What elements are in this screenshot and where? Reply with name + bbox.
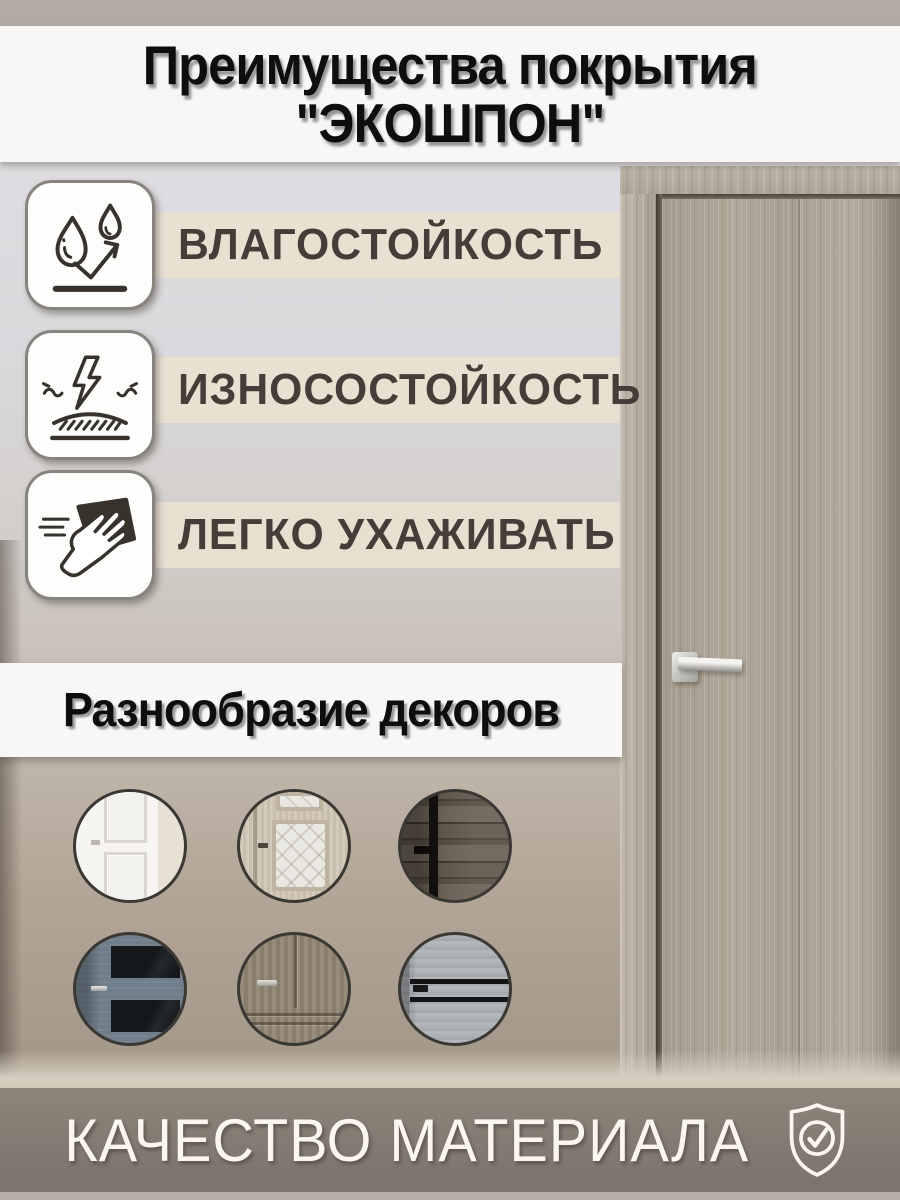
etched-glass-panel: [272, 820, 328, 891]
footer-label: КАЧЕСТВО МАТЕРИАЛА: [65, 1106, 750, 1175]
feature-icon-box-care: [25, 470, 155, 600]
feature-icon-box-moisture: [25, 180, 155, 310]
door-stile: [253, 792, 257, 900]
door-photo: [620, 166, 900, 1090]
title-line-2: "ЭКОШПОН": [295, 94, 604, 152]
water-drops-icon: [33, 188, 147, 302]
etched-glass-small: [276, 792, 324, 811]
black-molding-stripe: [410, 979, 509, 984]
hand-wipe-icon: [33, 478, 147, 592]
door-handle: [413, 985, 428, 992]
feature-icon-box-wear: [25, 330, 155, 460]
panel-groove: [240, 1013, 348, 1016]
door-panel: [104, 789, 147, 843]
feature-strip-moisture: ВЛАГОСТОЙКОСТЬ: [112, 212, 620, 278]
door-handle: [91, 840, 100, 845]
feature-strip-wear: ИЗНОСОСТОЙКОСТЬ: [112, 357, 620, 423]
feature-label-care: ЛЕГКО УХАЖИВАТЬ: [178, 510, 616, 560]
feature-label-wear: ИЗНОСОСТОЙКОСТЬ: [178, 365, 641, 415]
dark-glass-panel: [111, 1000, 180, 1032]
black-edge-strip: [429, 792, 438, 900]
footer-banner: КАЧЕСТВО МАТЕРИАЛА: [0, 1088, 900, 1192]
door-frame-jamb: [620, 194, 656, 1090]
infographic-canvas: Преимущества покрытия "ЭКОШПОН" ВЛАГОСТО…: [0, 0, 900, 1200]
wall-corner-shadow: [0, 540, 22, 1090]
door-leaf: [662, 199, 900, 1090]
decor-section-banner: Разнообразие декоров: [0, 663, 622, 757]
black-molding-stripe: [410, 997, 509, 1002]
decor-light-gray-plank-door: [398, 932, 512, 1046]
door-handle: [414, 846, 429, 854]
decor-blue-gray-dark-glass-door: [73, 932, 187, 1046]
top-edge-strip: [0, 0, 900, 26]
feature-strip-care: ЛЕГКО УХАЖИВАТЬ: [112, 502, 620, 568]
door-panel: [104, 852, 147, 903]
door-frame-head: [620, 166, 900, 196]
floor-blur-band: [0, 1050, 900, 1090]
panel-groove: [294, 935, 297, 1008]
door-handle: [91, 986, 107, 991]
dark-glass-panel: [111, 946, 180, 978]
decor-cream-etched-glass-door: [237, 789, 351, 903]
bottom-edge-strip: [0, 1192, 900, 1200]
feature-label-moisture: ВЛАГОСТОЙКОСТЬ: [178, 220, 603, 270]
decor-white-classic-door: [73, 789, 187, 903]
door-handle: [258, 843, 268, 848]
door-handle-lever: [678, 657, 743, 673]
panel-groove: [240, 1022, 348, 1025]
door-handle: [257, 980, 277, 986]
title-banner: Преимущества покрытия "ЭКОШПОН": [0, 26, 900, 162]
decor-section-title: Разнообразие декоров: [63, 683, 559, 738]
door-panel-groove: [798, 199, 800, 1090]
title-line-1: Преимущества покрытия: [143, 36, 757, 94]
shield-check-icon: [784, 1100, 850, 1180]
decor-gray-walnut-classic-door: [237, 932, 351, 1046]
impact-lightning-icon: [33, 338, 147, 452]
decor-dark-rustic-wood-door: [398, 789, 512, 903]
